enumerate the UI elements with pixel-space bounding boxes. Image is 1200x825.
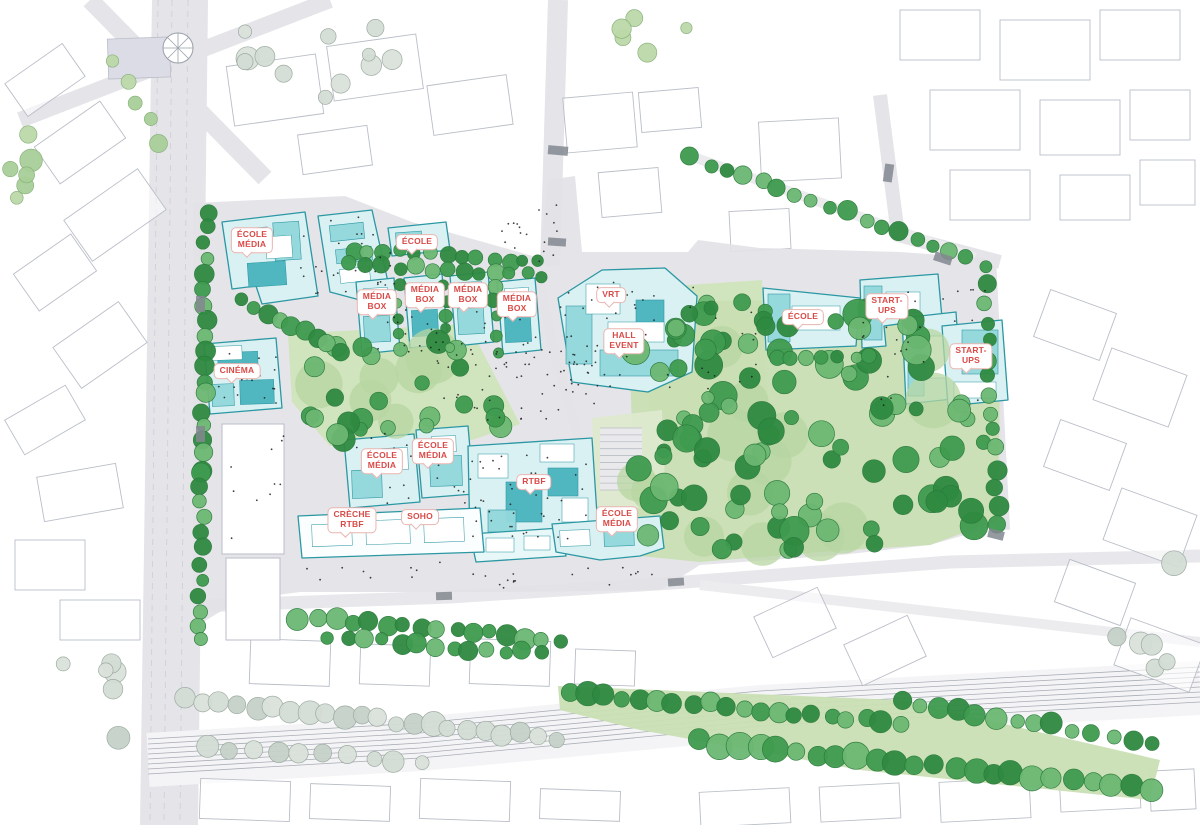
building-label-vrt: VRT bbox=[596, 287, 626, 303]
existing-towers-layer bbox=[222, 424, 284, 640]
building-label-ecole-media-nw: ÉCOLEMÉDIA bbox=[231, 227, 273, 253]
building-label-cinema: CINÉMA bbox=[214, 363, 261, 379]
building-label-start-ups-north: START-UPS bbox=[865, 293, 908, 319]
site-plan-drawing bbox=[0, 0, 1200, 825]
building-label-media-box-3: MÉDIABOX bbox=[448, 282, 488, 308]
building-soho-strip bbox=[298, 508, 484, 558]
site-plan-canvas: ÉCOLEMÉDIAÉCOLEMÉDIABOXMÉDIABOXMÉDIABOXM… bbox=[0, 0, 1200, 825]
building-label-media-box-4: MÉDIABOX bbox=[497, 291, 537, 317]
building-label-ecole-east: ÉCOLE bbox=[782, 309, 824, 325]
building-label-soho: SOHO bbox=[401, 509, 439, 525]
building-label-ecole-media-sw: ÉCOLEMÉDIA bbox=[361, 448, 403, 474]
building-label-media-box-1: MÉDIABOX bbox=[357, 289, 397, 315]
building-label-ecole-media-s: ÉCOLEMÉDIA bbox=[412, 438, 454, 464]
building-label-ecole-north: ÉCOLE bbox=[396, 234, 438, 250]
building-label-ecole-media-se: ÉCOLEMÉDIA bbox=[596, 506, 638, 532]
building-label-media-box-2: MÉDIABOX bbox=[405, 282, 445, 308]
building-label-creche-rtbf: CRÈCHERTBF bbox=[327, 507, 376, 533]
building-rtbf-canopy bbox=[470, 528, 566, 562]
building-label-hall-event: HALLEVENT bbox=[603, 328, 644, 354]
building-label-start-ups-east: START-UPS bbox=[949, 343, 992, 369]
roundabout-symbol bbox=[163, 33, 193, 63]
building-label-rtbf: RTBF bbox=[516, 474, 551, 490]
